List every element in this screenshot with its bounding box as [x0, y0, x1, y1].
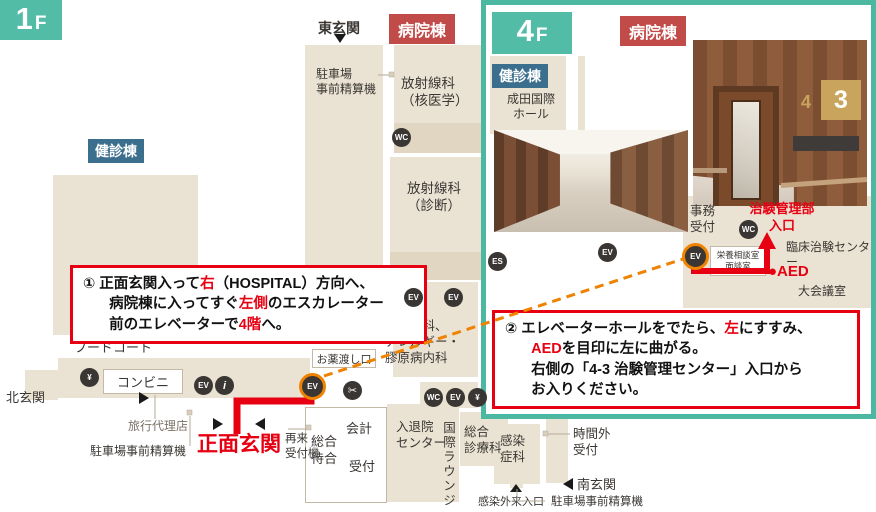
hospital-building-tag: 病院棟: [389, 14, 455, 44]
infectious-label: 感染 症科: [500, 433, 525, 465]
elevator-icon: EV: [194, 376, 213, 395]
infection-entrance-label: 感染外来入口: [478, 495, 544, 509]
parking-pay-label-south: 駐車場事前精算機: [551, 495, 643, 510]
radiology-diag-label: 放射線科 （診断）: [407, 180, 461, 215]
radiology-nuclear-label: 放射線科 （核医学）: [401, 75, 469, 110]
instruction-2-text: ② エレベーターホールをでたら、左にすすみ、 AEDを目印に左に曲がる。 右側の…: [531, 319, 847, 400]
intl-lounge-label: 国際ラウンジ: [440, 421, 456, 508]
hospital-building-tag-4f: 病院棟: [620, 16, 686, 46]
main-entrance-arrow-left: [255, 418, 265, 430]
salon-scissors-icon: ✂: [343, 381, 362, 400]
after-hours-label: 時間外 受付: [573, 426, 611, 458]
door-sign-4: 4: [801, 92, 811, 113]
corridor-photo: [494, 130, 688, 232]
restroom-icon: WC: [392, 128, 411, 147]
north-entrance-label: 北玄関: [6, 390, 45, 407]
door-nameplate: [793, 136, 859, 151]
elevator-main-icon: EV: [299, 373, 326, 400]
medicine-window-box: お薬渡し口: [312, 349, 376, 368]
entrance-door-photo: 4 3: [693, 40, 867, 206]
restroom-icon: WC: [739, 220, 758, 239]
reception-label: 受付: [349, 459, 375, 476]
door-sign-3: 3: [821, 80, 861, 120]
checkup-building-tag-4f: 健診棟: [492, 64, 548, 88]
south-entrance-label: 南玄関: [577, 477, 616, 494]
atm-icon: ¥: [80, 368, 99, 387]
aed-label: ●AED: [768, 262, 809, 281]
instruction-box-1: ① 正面玄関入って右（HOSPITAL）方向へ、 病院棟に入ってすぐ左側のエスカ…: [70, 265, 427, 344]
elevator-icon: EV: [444, 288, 463, 307]
conference-room-label: 大会議室: [798, 284, 846, 299]
elevator-icon: EV: [404, 288, 423, 307]
office-reception-label: 事務 受付: [690, 203, 715, 235]
checkup-building-tag: 健診棟: [88, 139, 144, 163]
main-entrance-arrow-right: [213, 418, 223, 430]
elevator-main-icon-4f: EV: [682, 243, 709, 270]
admission-center-label: 入退院 センター: [396, 419, 446, 451]
info-icon: i: [215, 376, 234, 395]
narita-hall-label: 成田国際 ホール: [492, 92, 570, 123]
floor-4f-badge: 4F: [492, 12, 572, 54]
floor-1f-badge: 1F: [0, 0, 62, 40]
atm-icon: ¥: [468, 388, 487, 407]
general-medicine-label: 総合 診療科: [464, 424, 502, 456]
instruction-box-2: ② エレベーターホールをでたら、左にすすみ、 AEDを目印に左に曲がる。 右側の…: [492, 310, 860, 409]
accounting-label: 会計: [346, 421, 372, 438]
escalator-icon: ES: [488, 252, 507, 271]
instruction-1-text: ① 正面玄関入って右（HOSPITAL）方向へ、 病院棟に入ってすぐ左側のエスカ…: [109, 274, 414, 335]
restroom-icon: WC: [424, 388, 443, 407]
nutrition-room-box: 栄養相談室 面談室: [710, 246, 766, 276]
main-entrance-label: 正面玄関: [197, 432, 281, 459]
parking-pay-label-west: 駐車場事前精算機: [90, 444, 186, 459]
building-block-sub: [510, 478, 523, 488]
parking-pay-label-top: 駐車場 事前精算機: [316, 67, 376, 98]
elevator-icon: EV: [598, 243, 617, 262]
travel-agency-label: 旅行代理店: [128, 419, 188, 434]
hospital-floor-map: 1F 東玄関 病院棟 健診棟 駐車場 事前精算機 放射線科 （核医学） 放射線科…: [0, 0, 876, 512]
elevator-icon: EV: [446, 388, 465, 407]
building-block-after-hours: [546, 417, 568, 483]
convenience-store-box: コンビニ: [103, 369, 183, 394]
east-entrance-label: 東玄関: [318, 20, 360, 38]
waiting-label: 総合 待合: [311, 434, 337, 467]
